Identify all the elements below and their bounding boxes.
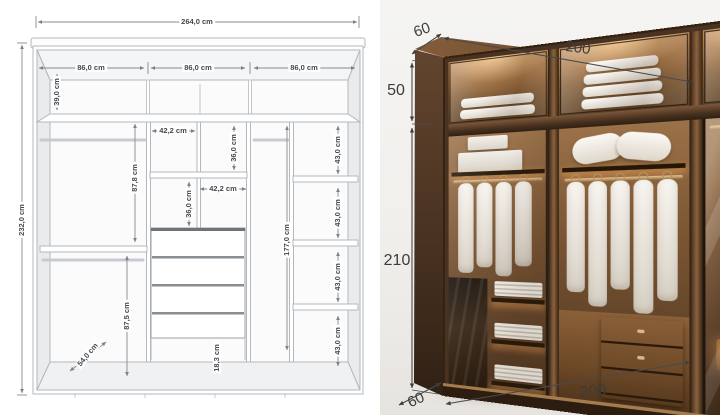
dim-lower-shelf-height: 36,0 cm	[185, 188, 193, 220]
dim-upper-shelf-width: 42,2 cm	[157, 127, 189, 135]
dim-lower-hanging-height: 87,5 cm	[123, 300, 131, 332]
dim-shelf-gap-4: 43,0 cm	[334, 325, 342, 357]
dim-tall-section-height: 177,0 cm	[283, 222, 291, 258]
dim-shelf-gap-3: 43,0 cm	[334, 261, 342, 293]
dim-upper-hanging-height: 87,8 cm	[131, 162, 139, 194]
dim-drawer-base-height: 18,3 cm	[213, 342, 221, 374]
dim-shelf-gap-2: 43,0 cm	[334, 197, 342, 229]
wardrobe-product-image: 264,0 cm 232,0 cm 86,0 cm 86,0 cm 86,0 c…	[0, 0, 720, 415]
dim-top-section-height: 39,0 cm	[53, 76, 61, 108]
dim-lower-shelf-width: 42,2 cm	[207, 185, 239, 193]
dim-upper-shelf-height: 36,0 cm	[230, 132, 238, 164]
photo-panel: 60 200 50 210 60 200	[380, 0, 720, 415]
top-shelf	[37, 114, 360, 122]
dim-photo-upper-height: 50	[387, 82, 405, 100]
base-feet	[75, 394, 285, 398]
dim-shelf-gap-1: 43,0 cm	[334, 134, 342, 166]
blueprint-panel: 264,0 cm 232,0 cm 86,0 cm 86,0 cm 86,0 c…	[0, 0, 380, 415]
photo-dimension-lines	[380, 0, 720, 415]
dim-bay-width-3: 86,0 cm	[288, 64, 320, 72]
dim-photo-main-height: 210	[384, 252, 411, 270]
dim-bay-width-2: 86,0 cm	[182, 64, 214, 72]
dim-overall-height: 232,0 cm	[18, 202, 26, 238]
dim-overall-width: 264,0 cm	[179, 18, 215, 26]
dim-bay-width-1: 86,0 cm	[75, 64, 107, 72]
dim-photo-width-bottom: 200	[579, 382, 607, 403]
dim-photo-width-top: 200	[564, 38, 591, 58]
